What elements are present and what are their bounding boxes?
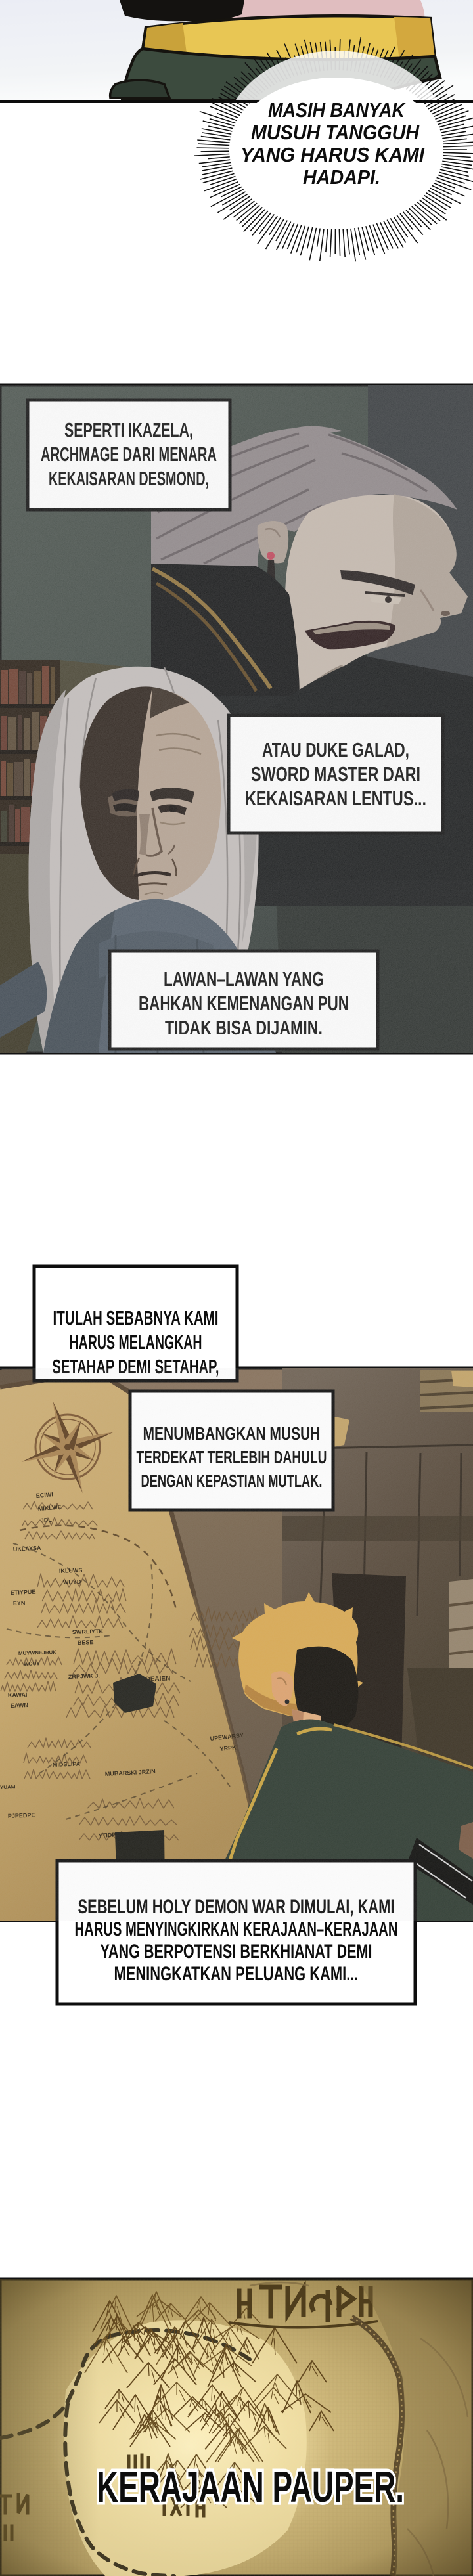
svg-text:HARUS MENYINGKIRKAN KERAJAAN–K: HARUS MENYINGKIRKAN KERAJAAN–KERAJAAN: [75, 1919, 398, 1940]
svg-text:MUSUH TANGGUH: MUSUH TANGGUH: [251, 121, 420, 144]
svg-text:HADAPI.: HADAPI.: [303, 166, 380, 189]
svg-text:KERAJAAN PAUPER.: KERAJAAN PAUPER.: [97, 2462, 404, 2512]
svg-text:HARUS MELANGKAH: HARUS MELANGKAH: [70, 1331, 202, 1354]
svg-text:YANG HARUS KAMI: YANG HARUS KAMI: [240, 143, 425, 166]
svg-text:ITULAH SEBABNYA KAMI: ITULAH SEBABNYA KAMI: [53, 1306, 219, 1329]
svg-text:YANG BERPOTENSI BERKHIANAT DEM: YANG BERPOTENSI BERKHIANAT DEMI: [101, 1941, 372, 1963]
svg-text:MASIH BANYAK: MASIH BANYAK: [268, 99, 406, 122]
svg-text:MENINGKATKAN PELUANG KAMI...: MENINGKATKAN PELUANG KAMI...: [114, 1963, 359, 1985]
